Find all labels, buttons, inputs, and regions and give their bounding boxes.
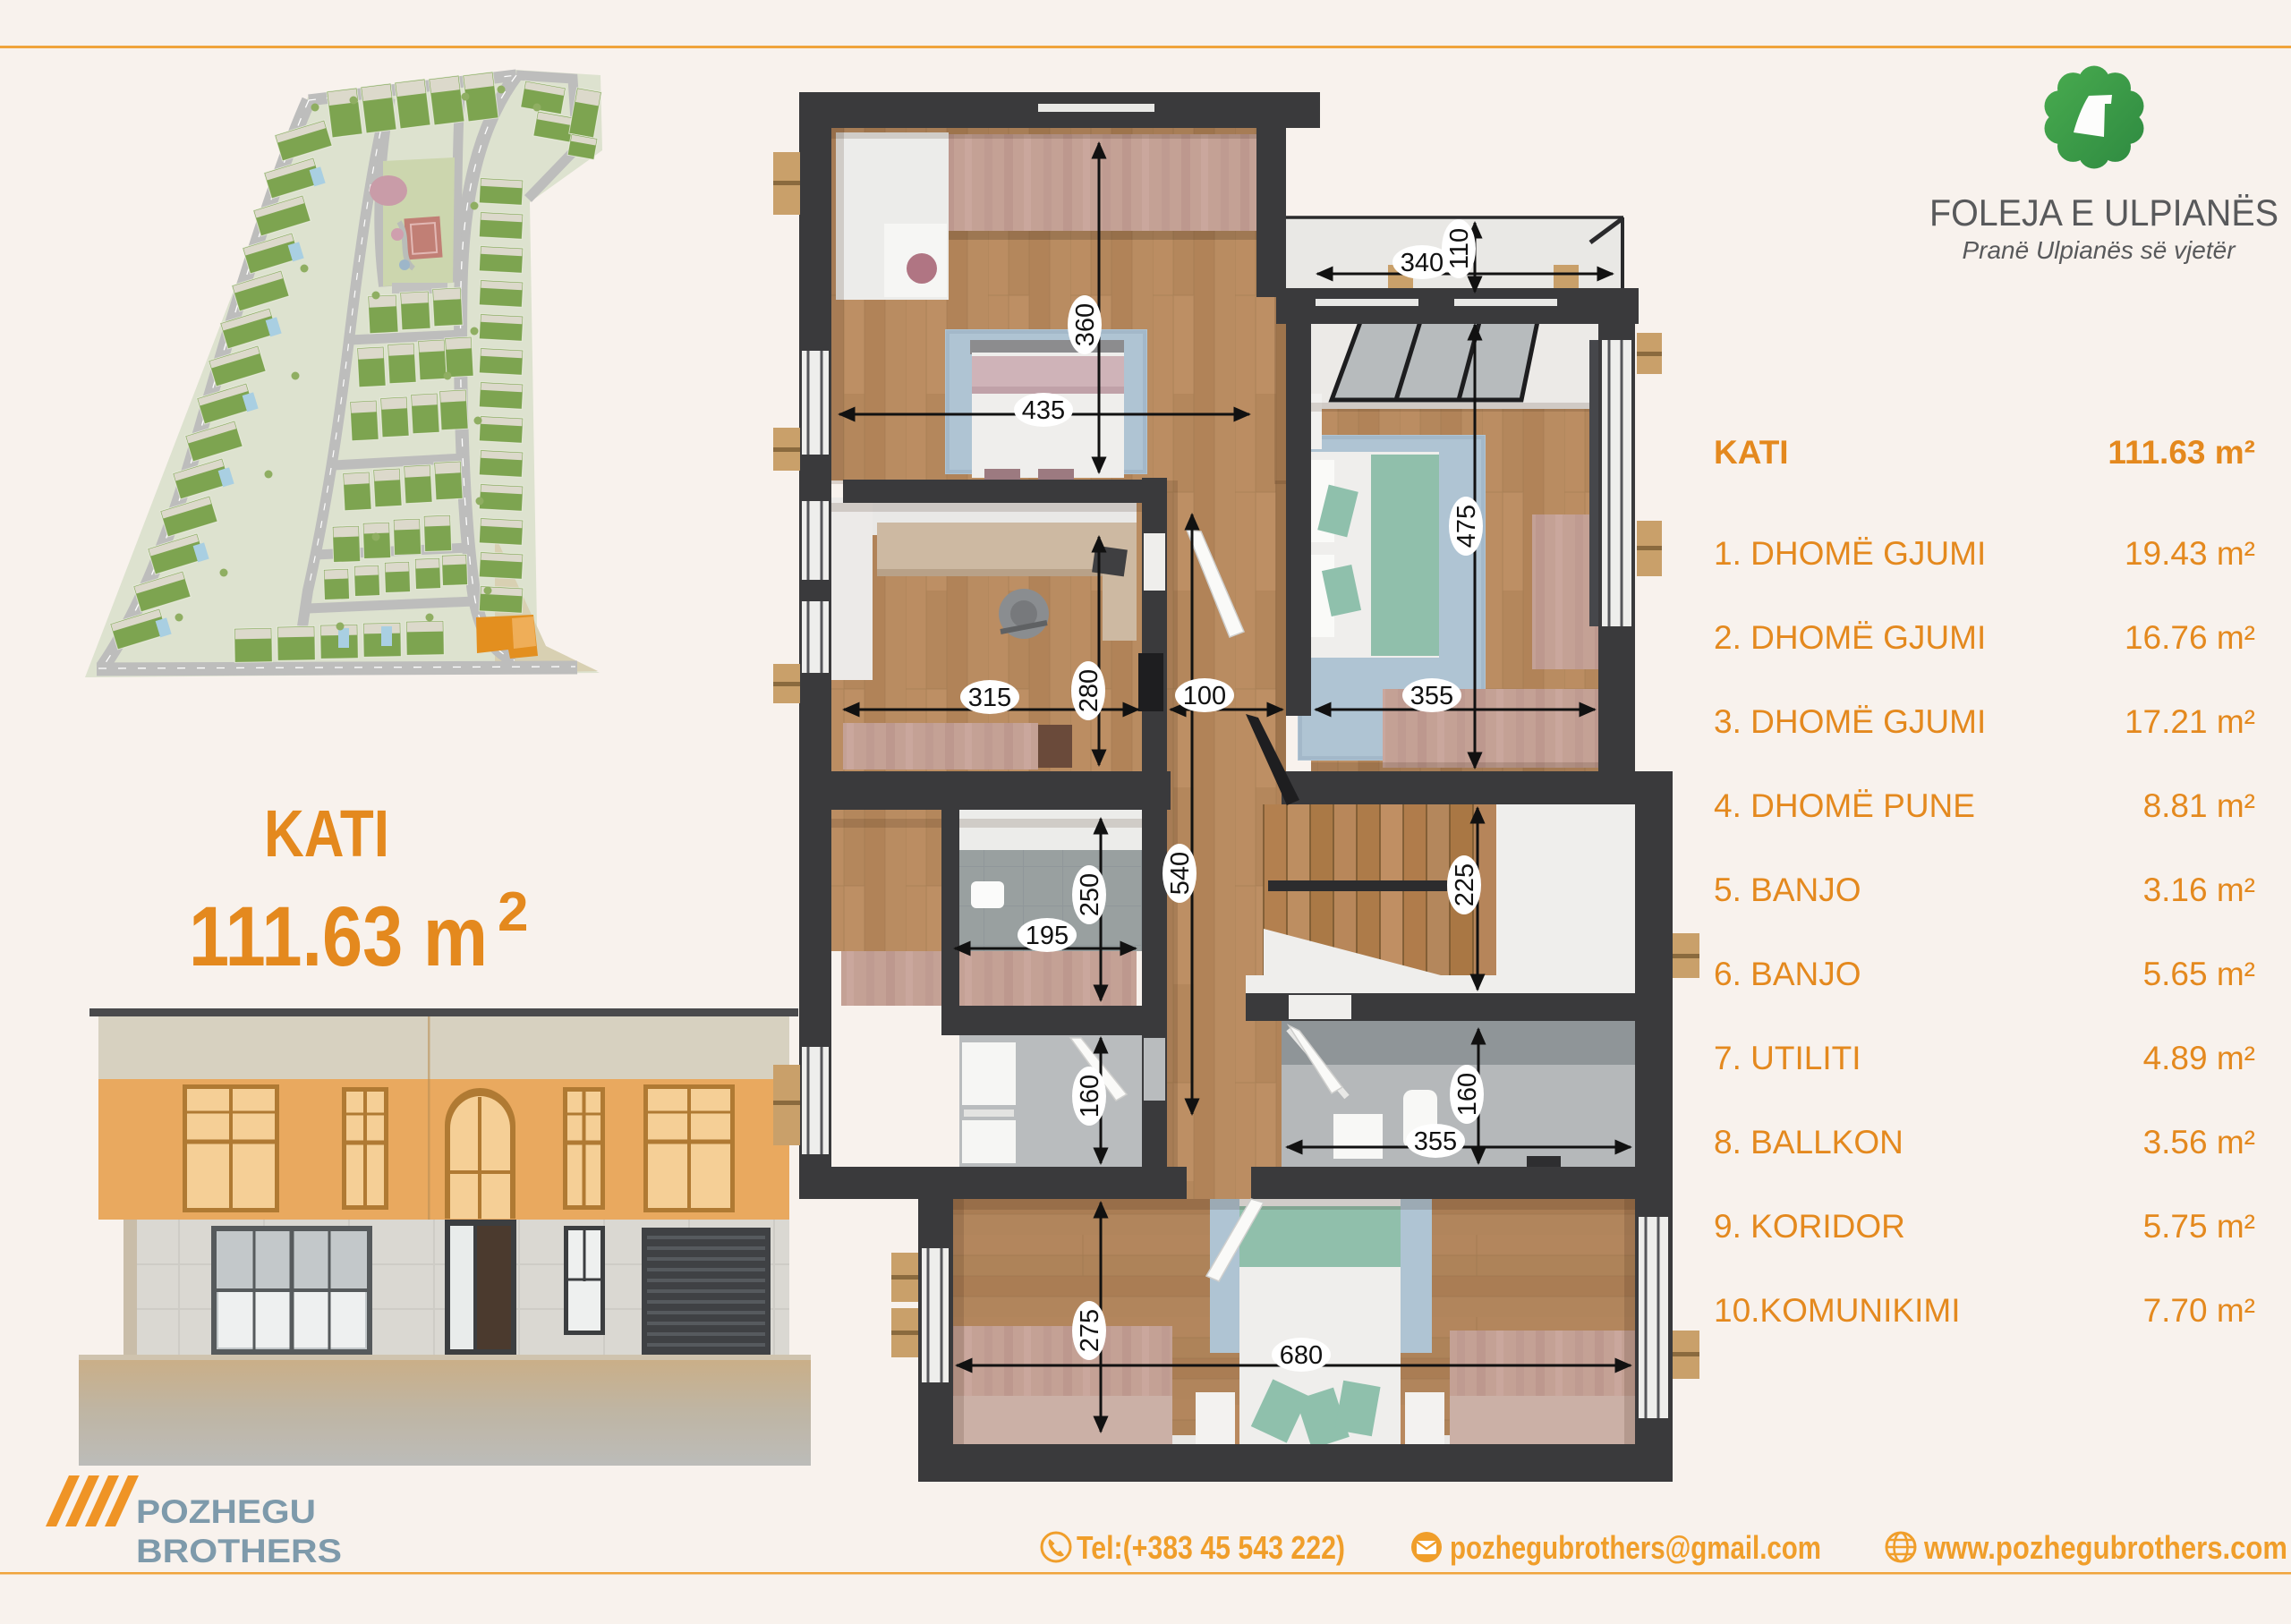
svg-text:17.21 m²: 17.21 m²: [2125, 703, 2255, 740]
svg-text:5.65 m²: 5.65 m²: [2143, 956, 2255, 992]
svg-text:www.pozhegubrothers.com: www.pozhegubrothers.com: [1923, 1529, 2287, 1566]
svg-text:340: 340: [1401, 249, 1444, 277]
svg-text:280: 280: [1075, 669, 1103, 712]
svg-text:4.89 m²: 4.89 m²: [2143, 1040, 2255, 1076]
svg-text:355: 355: [1410, 682, 1453, 710]
svg-text:315: 315: [968, 684, 1011, 712]
svg-text:7. UTILITI: 7. UTILITI: [1714, 1040, 1861, 1076]
svg-text:7.70 m²: 7.70 m²: [2143, 1292, 2255, 1329]
svg-text:FOLEJA E ULPIANËS: FOLEJA E ULPIANËS: [1929, 191, 2278, 234]
svg-text:475: 475: [1452, 505, 1481, 548]
svg-text:Tel:(+383 45 543 222): Tel:(+383 45 543 222): [1077, 1529, 1345, 1566]
svg-text:160: 160: [1076, 1075, 1104, 1118]
svg-text:111.63 m²: 111.63 m²: [2108, 434, 2255, 471]
svg-text:540: 540: [1166, 852, 1195, 895]
svg-text:2. DHOMË GJUMI: 2. DHOMË GJUMI: [1714, 619, 1986, 656]
svg-text:275: 275: [1076, 1309, 1104, 1352]
svg-text:680: 680: [1280, 1341, 1323, 1370]
svg-text:KATI: KATI: [1714, 434, 1789, 471]
svg-text:100: 100: [1183, 682, 1226, 710]
svg-text:BROTHERS: BROTHERS: [136, 1533, 342, 1569]
svg-text:pozhegubrothers@gmail.com: pozhegubrothers@gmail.com: [1450, 1529, 1821, 1566]
svg-text:355: 355: [1414, 1127, 1457, 1156]
svg-text:4. DHOMË PUNE: 4. DHOMË PUNE: [1714, 787, 1975, 824]
svg-text:8. BALLKON: 8. BALLKON: [1714, 1124, 1903, 1161]
svg-text:16.76 m²: 16.76 m²: [2125, 619, 2255, 656]
svg-text:10.KOMUNIKIMI: 10.KOMUNIKIMI: [1714, 1292, 1961, 1329]
svg-text:3.56 m²: 3.56 m²: [2143, 1124, 2255, 1161]
svg-text:Pranë Ulpianës së vjetër: Pranë Ulpianës së vjetër: [1962, 236, 2236, 264]
svg-text:POZHEGU: POZHEGU: [136, 1493, 316, 1530]
svg-text:195: 195: [1026, 922, 1069, 950]
svg-text:5.75 m²: 5.75 m²: [2143, 1208, 2255, 1245]
svg-text:435: 435: [1022, 396, 1065, 425]
svg-text:2: 2: [498, 881, 528, 943]
svg-text:6. BANJO: 6. BANJO: [1714, 956, 1861, 992]
svg-text:8.81 m²: 8.81 m²: [2143, 787, 2255, 824]
svg-text:111.63 m: 111.63 m: [189, 889, 488, 984]
svg-text:225: 225: [1451, 863, 1479, 906]
svg-text:3. DHOMË GJUMI: 3. DHOMË GJUMI: [1714, 703, 1986, 740]
svg-text:360: 360: [1071, 303, 1100, 346]
svg-text:3.16 m²: 3.16 m²: [2143, 872, 2255, 908]
svg-text:19.43 m²: 19.43 m²: [2125, 535, 2255, 572]
svg-text:KATI: KATI: [264, 796, 389, 871]
svg-text:250: 250: [1076, 873, 1104, 916]
svg-text:5. BANJO: 5. BANJO: [1714, 872, 1861, 908]
svg-text:1. DHOMË GJUMI: 1. DHOMË GJUMI: [1714, 535, 1986, 572]
svg-text:110: 110: [1445, 228, 1474, 269]
svg-text:160: 160: [1453, 1073, 1482, 1116]
svg-text:9. KORIDOR: 9. KORIDOR: [1714, 1208, 1905, 1245]
